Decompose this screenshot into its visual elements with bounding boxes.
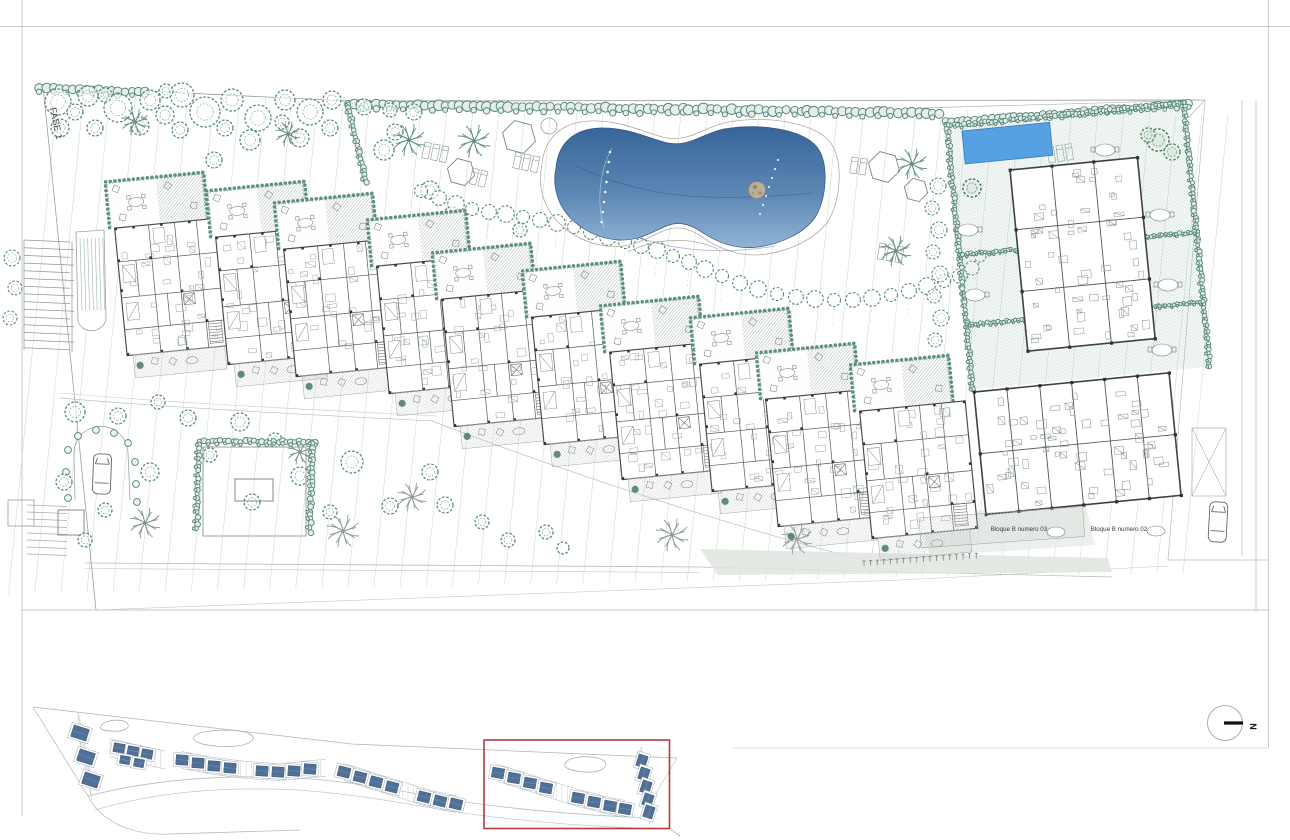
svg-text:Bloque B numero 02: Bloque B numero 02 <box>1091 526 1148 533</box>
svg-text:Bloque B numero 03: Bloque B numero 03 <box>991 526 1048 533</box>
svg-text:N: N <box>1248 723 1258 730</box>
